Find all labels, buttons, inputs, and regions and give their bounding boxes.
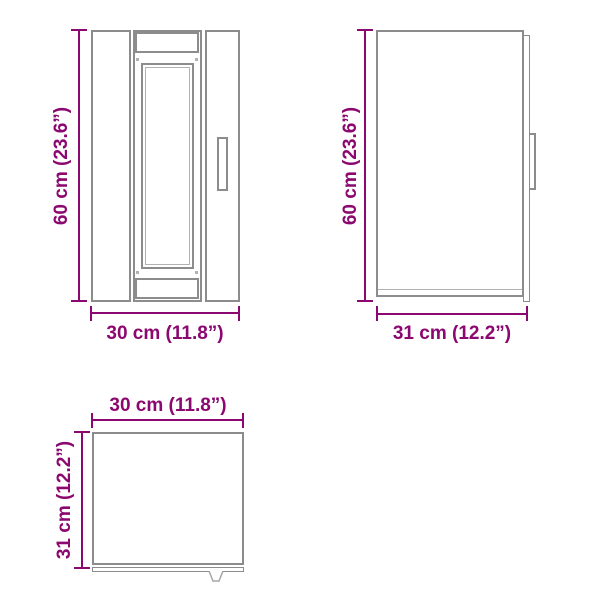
- side-height-dimension-line: [364, 30, 366, 301]
- dimension-cap: [526, 306, 528, 321]
- door-top-rail: [135, 32, 199, 53]
- cabinet-door: [133, 30, 202, 302]
- front-height-dimension-line: [78, 30, 80, 301]
- side-width-label: 31 cm (12.2”): [352, 322, 552, 346]
- front-width-label: 30 cm (11.8”): [65, 322, 265, 346]
- front-width-dimension-line: [91, 312, 239, 314]
- top-width-label: 30 cm (11.8”): [68, 394, 268, 418]
- cabinet-right-stile: [205, 30, 240, 302]
- cabinet-left-panel: [91, 30, 131, 302]
- dimension-cap: [357, 300, 373, 302]
- hinge-dot: [195, 271, 198, 274]
- cabinet-side-body: [376, 30, 524, 297]
- side-width-dimension-line: [377, 313, 527, 315]
- hinge-dot: [195, 58, 198, 61]
- side-height-label: 60 cm (23.6”): [339, 66, 363, 266]
- front-height-label: 60 cm (23.6”): [50, 66, 74, 266]
- door-bottom-rail: [135, 278, 199, 299]
- top-width-dimension-line: [92, 419, 244, 421]
- door-center-panel: [141, 63, 194, 269]
- door-handle-front: [217, 137, 228, 191]
- bottom-panel-line: [378, 289, 522, 290]
- top-depth-label: 31 cm (12.2”): [53, 400, 77, 600]
- dimension-cap: [71, 300, 87, 302]
- cabinet-top-body: [92, 432, 244, 565]
- dimension-cap: [242, 413, 244, 428]
- door-panel-inner-line: [145, 67, 190, 265]
- dimension-cap: [238, 306, 240, 321]
- hinge-dot: [136, 271, 139, 274]
- door-edge-strip: [523, 35, 530, 302]
- door-handle-top: [208, 571, 224, 583]
- hinge-dot: [136, 58, 139, 61]
- top-depth-dimension-line: [81, 432, 83, 568]
- product-dimension-diagram: 60 cm (23.6”) 30 cm (11.8”): [0, 0, 600, 600]
